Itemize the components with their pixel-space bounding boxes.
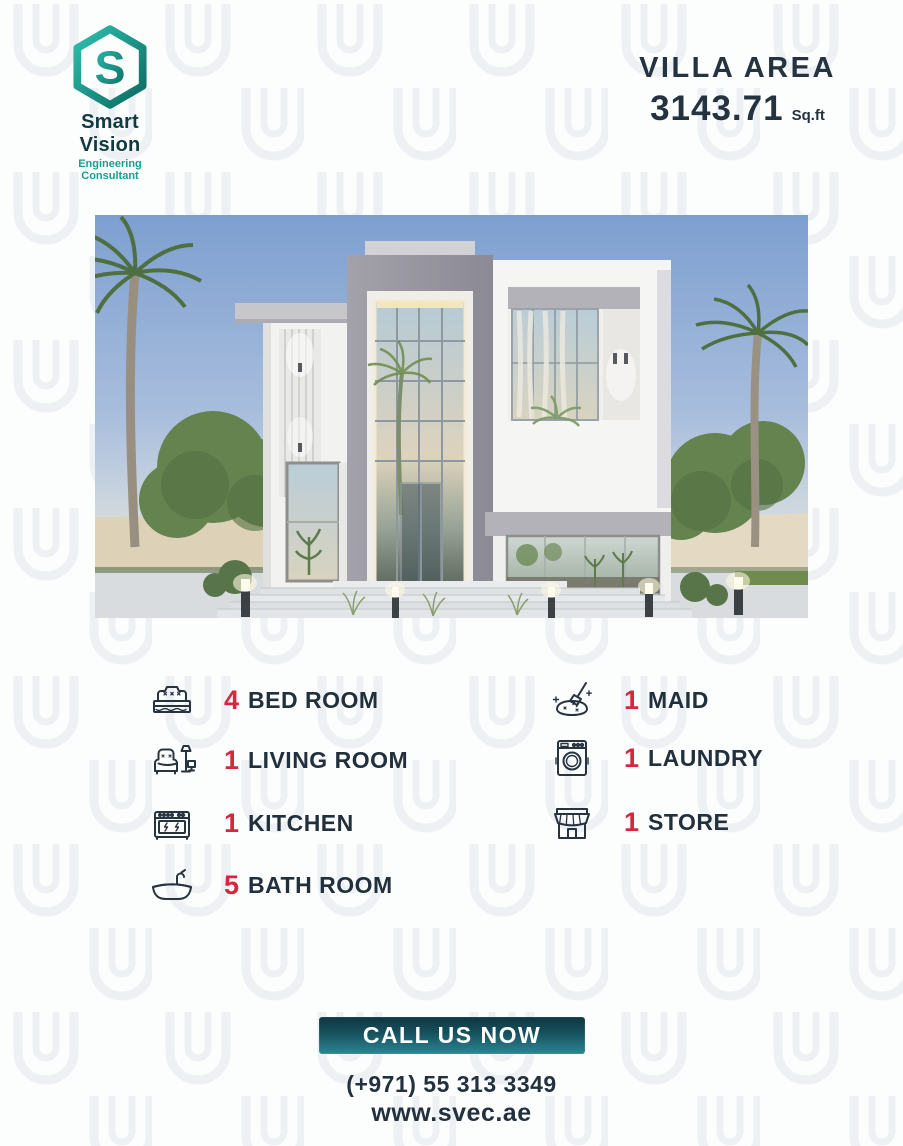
- website-url[interactable]: www.svec.ae: [0, 1099, 903, 1128]
- feature-store: 1 STORE: [546, 798, 729, 846]
- villa-area-unit: Sq.ft: [792, 107, 825, 124]
- feature-living-room: 1 LIVING ROOM: [146, 736, 408, 784]
- feature-count: 1: [624, 685, 639, 716]
- feature-label: BED ROOM: [248, 687, 379, 714]
- feature-count: 5: [224, 870, 239, 901]
- feature-label: MAID: [648, 687, 709, 714]
- feature-count: 1: [224, 745, 239, 776]
- feature-label: STORE: [648, 809, 729, 836]
- feature-count: 1: [224, 808, 239, 839]
- svg-text:S: S: [95, 41, 126, 93]
- feature-count: 4: [224, 685, 239, 716]
- feature-label: BATH ROOM: [248, 872, 393, 899]
- feature-label: LAUNDRY: [648, 745, 763, 772]
- washing-machine-icon: [546, 734, 598, 782]
- sofa-lamp-icon: [146, 736, 198, 784]
- feature-bath-room: 5 BATH ROOM: [146, 861, 393, 909]
- cleaning-icon: [546, 676, 598, 724]
- hexagon-s-logo-icon: S: [67, 24, 153, 110]
- storefront-icon: [546, 798, 598, 846]
- villa-area-value: 3143.71: [650, 89, 784, 129]
- call-us-now-button[interactable]: CALL US NOW: [319, 1017, 585, 1054]
- feature-label: KITCHEN: [248, 810, 354, 837]
- feature-bed-room: 4 BED ROOM: [146, 676, 379, 724]
- stove-icon: [146, 799, 198, 847]
- phone-number[interactable]: (+971) 55 313 3349: [0, 1071, 903, 1098]
- villa-photo: [95, 215, 808, 618]
- feature-label: LIVING ROOM: [248, 747, 408, 774]
- brand-name: Smart Vision: [48, 111, 172, 157]
- feature-kitchen: 1 KITCHEN: [146, 799, 354, 847]
- bed-icon: [146, 676, 198, 724]
- villa-area-label: VILLA AREA: [630, 52, 845, 85]
- brand-tagline: Engineering Consultant: [48, 158, 172, 182]
- feature-maid: 1 MAID: [546, 676, 709, 724]
- feature-count: 1: [624, 743, 639, 774]
- bathtub-icon: [146, 861, 198, 909]
- villa-area-block: VILLA AREA 3143.71 Sq.ft: [630, 52, 845, 129]
- brand-logo-block: S Smart Vision Engineering Consultant: [48, 24, 172, 182]
- feature-laundry: 1 LAUNDRY: [546, 734, 763, 782]
- feature-count: 1: [624, 807, 639, 838]
